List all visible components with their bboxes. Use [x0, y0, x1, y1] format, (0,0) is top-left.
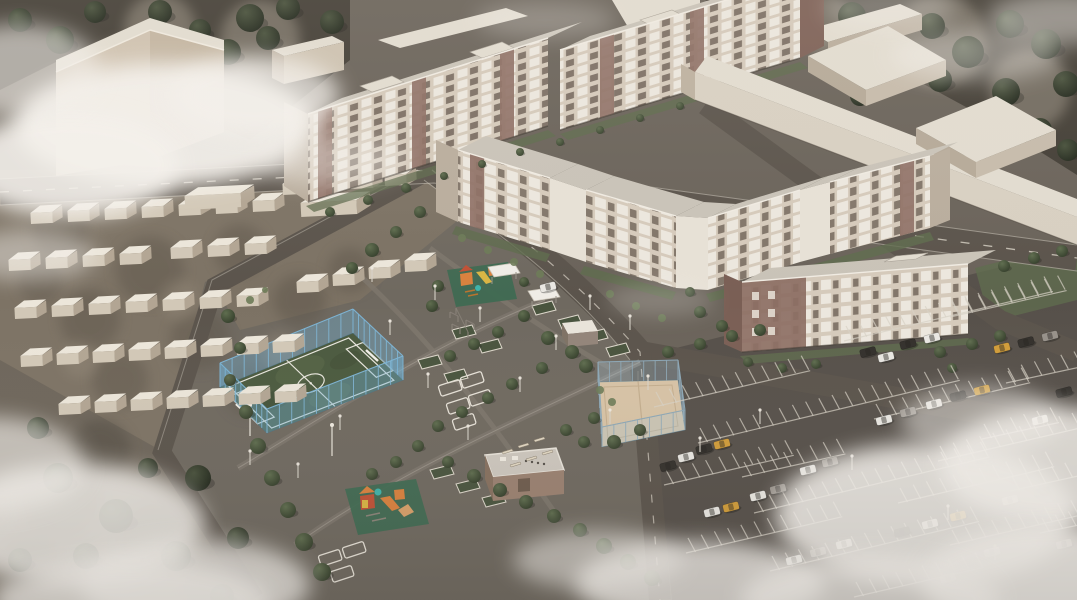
aerial-render	[0, 0, 1077, 600]
color-grade-overlay	[0, 0, 1077, 600]
aerial-render-stage	[0, 0, 1077, 600]
